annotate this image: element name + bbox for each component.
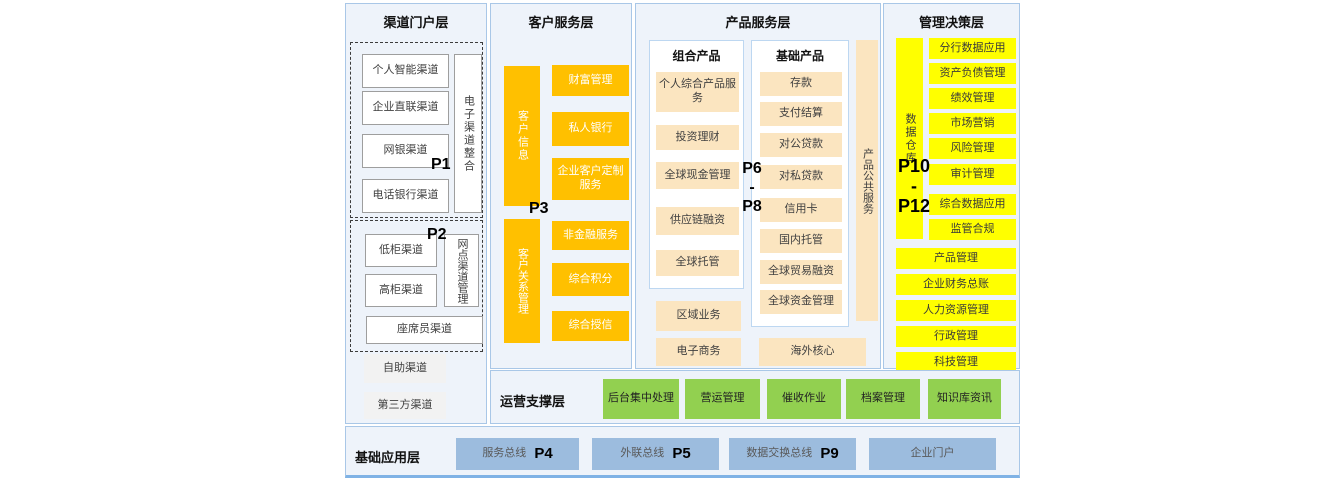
basic-item: 国内托管	[760, 229, 842, 253]
product-service-title: 产品服务层	[636, 12, 880, 31]
p1-label: P1	[431, 157, 451, 173]
customer-info-label: 客户信息	[517, 110, 528, 162]
bus-label: 数据交换总线	[746, 447, 812, 461]
p3-label: P3	[529, 201, 549, 217]
p2-label: P2	[427, 227, 447, 243]
p-range-dash: -	[734, 178, 770, 197]
channel-item: 高柜渠道	[365, 274, 437, 307]
channel-item: 个人智能渠道	[362, 54, 449, 88]
management-item: 绩效管理	[929, 88, 1016, 109]
management-decision-title: 管理决策层	[884, 12, 1019, 31]
channel-extra-item: 自助渠道	[364, 354, 446, 383]
p12-label: P12	[890, 196, 938, 216]
customer-relation-bar: 客户关系管理	[504, 219, 540, 343]
product-extra-item: 区域业务	[656, 301, 741, 331]
p9-label: P9	[820, 445, 838, 464]
p10-label: P10	[890, 156, 938, 176]
ops-item: 档案管理	[846, 379, 920, 419]
operation-support-row: 运营支撑层 后台集中处理 营运管理 催收作业 档案管理 知识库资讯	[490, 370, 1020, 424]
management-item: 市场营销	[929, 113, 1016, 134]
product-service-column: 产品服务层 组合产品 个人综合产品服务 投资理财 全球现金管理 供应链融资 全球…	[635, 3, 881, 369]
data-exchange-bus-item: 数据交换总线 P9	[729, 438, 856, 470]
ops-item: 催收作业	[767, 379, 841, 419]
customer-relation-label: 客户关系管理	[517, 248, 528, 314]
external-bus-item: 外联总线 P5	[592, 438, 719, 470]
bus-label: 外联总线	[620, 447, 664, 461]
channel-integration-bar: 电子渠道整合	[454, 54, 482, 213]
management-item: 分行数据应用	[929, 38, 1016, 59]
management-item: 审计管理	[929, 164, 1016, 185]
branch-channel-mgmt-label: 网点渠道管理	[456, 238, 467, 304]
channel-group-2: 低柜渠道 高柜渠道 网点渠道管理 座席员渠道 P2	[350, 220, 483, 352]
basic-item: 支付结算	[760, 102, 842, 126]
customer-service-title: 客户服务层	[491, 12, 631, 31]
basic-product-title: 基础产品	[752, 47, 848, 64]
combo-product-group: 组合产品 个人综合产品服务 投资理财 全球现金管理 供应链融资 全球托管	[649, 40, 744, 289]
customer-item: 非金融服务	[552, 221, 629, 250]
bus-label: 服务总线	[482, 447, 526, 461]
channel-item: 电话银行渠道	[362, 179, 449, 213]
basic-item: 全球资金管理	[760, 290, 842, 314]
p10-p12-label: P10 - P12	[890, 156, 938, 216]
basic-item: 信用卡	[760, 198, 842, 222]
product-public-service-label: 产品公共服务	[862, 148, 873, 214]
channel-portal-column: 渠道门户层 个人智能渠道 企业直联渠道 网银渠道 电话银行渠道 电子渠道整合 P…	[345, 3, 487, 424]
channel-group-1: 个人智能渠道 企业直联渠道 网银渠道 电话银行渠道 电子渠道整合 P1	[350, 42, 483, 218]
ops-item: 知识库资讯	[928, 379, 1001, 419]
basic-item: 对公贷款	[760, 133, 842, 157]
basic-application-title: 基础应用层	[355, 447, 420, 466]
channel-item: 企业直联渠道	[362, 91, 449, 125]
bus-label: 企业门户	[911, 447, 955, 461]
basic-application-row: 基础应用层 服务总线 P4 外联总线 P5 数据交换总线 P9 企业门户	[345, 426, 1020, 478]
combo-item: 全球托管	[656, 250, 739, 276]
management-item-wide: 人力资源管理	[896, 300, 1016, 321]
channel-extra-item: 第三方渠道	[364, 392, 446, 419]
combo-item: 供应链融资	[656, 207, 739, 235]
overseas-core-item: 海外核心	[759, 338, 866, 366]
p-range-dash: -	[890, 176, 938, 196]
product-extra-item: 电子商务	[656, 338, 741, 366]
ops-item: 营运管理	[685, 379, 760, 419]
combo-item: 全球现金管理	[656, 162, 739, 189]
management-item: 综合数据应用	[929, 194, 1016, 215]
channel-item-wide: 座席员渠道	[366, 316, 483, 344]
architecture-diagram: 渠道门户层 个人智能渠道 企业直联渠道 网银渠道 电话银行渠道 电子渠道整合 P…	[0, 0, 1333, 482]
basic-item: 全球贸易融资	[760, 260, 842, 284]
management-item: 风险管理	[929, 138, 1016, 159]
management-item-wide: 企业财务总账	[896, 274, 1016, 295]
basic-item: 对私贷款	[760, 165, 842, 189]
combo-item: 投资理财	[656, 125, 739, 150]
p6-p8-label: P6 - P8	[734, 159, 770, 216]
customer-item: 财富管理	[552, 65, 629, 96]
branch-channel-mgmt-bar: 网点渠道管理	[444, 234, 479, 307]
product-public-service-bar: 产品公共服务	[856, 40, 878, 321]
service-bus-item: 服务总线 P4	[456, 438, 579, 470]
management-item: 监管合规	[929, 219, 1016, 240]
customer-service-column: 客户服务层 客户信息 财富管理 私人银行 企业客户定制服务 P3 客户关系管理 …	[490, 3, 632, 369]
management-item-wide: 行政管理	[896, 326, 1016, 347]
management-decision-column: 管理决策层 数据仓库 分行数据应用 资产负债管理 绩效管理 市场营销 风险管理 …	[883, 3, 1020, 369]
customer-info-bar: 客户信息	[504, 66, 540, 206]
customer-item: 企业客户定制服务	[552, 158, 629, 200]
p5-label: P5	[672, 445, 690, 464]
management-item-wide: 产品管理	[896, 248, 1016, 269]
combo-item: 个人综合产品服务	[656, 72, 739, 112]
p6-label: P6	[734, 159, 770, 178]
p4-label: P4	[534, 445, 552, 464]
basic-item: 存款	[760, 72, 842, 96]
customer-item: 综合积分	[552, 263, 629, 296]
ops-item: 后台集中处理	[603, 379, 679, 419]
combo-product-title: 组合产品	[650, 47, 743, 64]
customer-item: 私人银行	[552, 112, 629, 146]
channel-integration-label: 电子渠道整合	[463, 95, 474, 173]
p8-label: P8	[734, 197, 770, 216]
operation-support-title: 运营支撑层	[500, 391, 565, 410]
enterprise-portal-item: 企业门户	[869, 438, 996, 470]
management-item: 资产负债管理	[929, 63, 1016, 84]
customer-item: 综合授信	[552, 311, 629, 341]
channel-portal-title: 渠道门户层	[346, 12, 486, 31]
